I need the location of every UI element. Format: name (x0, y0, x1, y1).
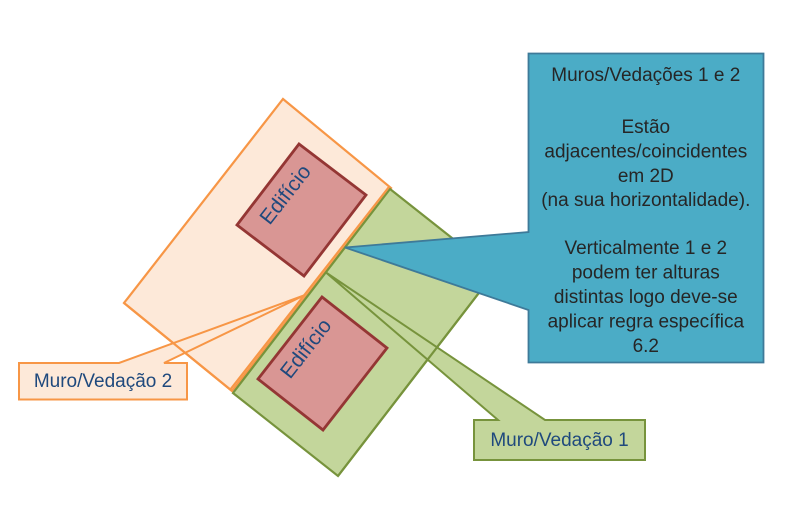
svg-text:6.2: 6.2 (633, 336, 659, 357)
svg-text:Estão: Estão (622, 117, 671, 138)
svg-text:Muro/Vedação 2: Muro/Vedação 2 (34, 371, 172, 392)
svg-text:Muros/Vedações 1 e 2: Muros/Vedações 1 e 2 (551, 65, 740, 86)
svg-text:adjacentes/coincidentes: adjacentes/coincidentes (544, 142, 747, 163)
svg-text:aplicar regra específica: aplicar regra específica (548, 312, 745, 333)
svg-text:Muro/Vedação 1: Muro/Vedação 1 (490, 430, 628, 451)
svg-text:distintas logo deve-se: distintas logo deve-se (554, 287, 738, 308)
svg-text:podem ter alturas: podem ter alturas (572, 263, 720, 284)
svg-text:Verticalmente 1 e 2: Verticalmente 1 e 2 (564, 238, 727, 259)
svg-text:(na sua horizontalidade).: (na sua horizontalidade). (541, 190, 750, 211)
svg-text:em 2D: em 2D (618, 166, 674, 187)
